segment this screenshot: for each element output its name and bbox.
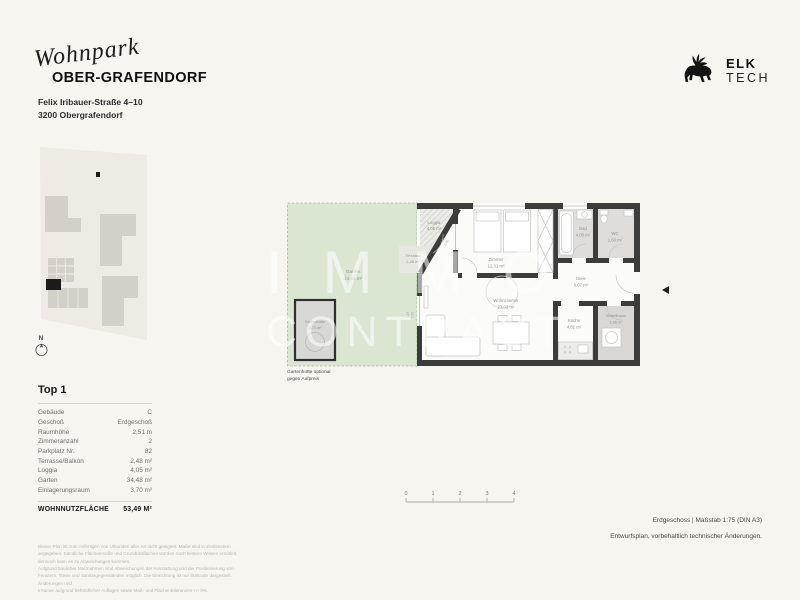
row-value: 82: [145, 448, 152, 455]
row-label: Zimmeranzahl: [38, 438, 79, 445]
row-value: 2,48 m²: [130, 458, 152, 465]
room-label-wohnzimmer: Wohnzimmer: [493, 298, 519, 303]
unit-table-title: Top 1: [38, 384, 152, 396]
row-label: Geschoß: [38, 419, 64, 426]
north-compass: N: [32, 335, 50, 362]
row-label: Raumhöhe: [38, 429, 69, 436]
compass-icon: [34, 342, 49, 357]
table-row: Einlagerungsraum 3,70 m²: [38, 486, 152, 496]
room-label-zimmer: Zimmer: [489, 257, 504, 262]
dim-annotation: 1,13: [406, 312, 410, 318]
project-name: OBER-GRAFENDORF: [52, 70, 207, 86]
row-value: 2,51 m: [132, 429, 152, 436]
north-label: N: [32, 335, 50, 342]
room-label-garten: Garten: [346, 269, 360, 274]
toilet: [600, 210, 608, 215]
table-row: Gebäude C: [38, 408, 152, 418]
room-label-wc: WC: [611, 231, 618, 236]
table-row: Geschoß Erdgeschoß: [38, 418, 152, 428]
room-area-abstellraum: 1,66 m²: [609, 320, 623, 325]
site-plan: [34, 138, 169, 363]
table-row: Loggia 4,05 m²: [38, 466, 152, 476]
row-label: Parkplatz Nr.: [38, 448, 75, 455]
table-row: Garten 34,48 m²: [38, 476, 152, 486]
scale-bar: 0 1 2 3 4: [404, 489, 516, 505]
wc-sink: [624, 210, 633, 216]
dim-annotation: 2,30: [411, 312, 415, 318]
elk-icon: [681, 52, 721, 90]
brand-name-elk: ELK: [726, 57, 770, 71]
site-boundary: [40, 147, 147, 340]
entrance-arrow-icon: [662, 286, 669, 294]
address-line2: 3200 Obergrafendorf: [38, 110, 123, 120]
washing-machine: [602, 328, 621, 347]
scale-tick-label: 2: [458, 491, 461, 497]
footer-revision-note: Entwurfsplan, vorbehaltlich technischer …: [460, 533, 762, 540]
row-value: 3,70 m²: [130, 487, 152, 494]
kitchen-sink: [578, 345, 588, 353]
row-label: Garten: [38, 477, 58, 484]
scale-tick-label: 3: [485, 491, 488, 497]
room-label-loggia: Loggia: [428, 220, 442, 225]
room-label-abstellraum: Abstellraum: [606, 313, 627, 318]
row-value: 34,48 m²: [127, 477, 152, 484]
row-label: Einlagerungsraum: [38, 487, 90, 494]
shed-note-line2: gegen Aufpreis: [287, 376, 357, 383]
total-label: WOHNNUTZFLÄCHE: [38, 506, 109, 513]
table-total-row: WOHNNUTZFLÄCHE 53,49 M²: [38, 506, 152, 513]
room-area-diele: 6,07 m²: [574, 283, 589, 288]
wardrobe: [538, 210, 553, 273]
row-value: 4,05 m²: [130, 467, 152, 474]
row-value: C: [147, 409, 152, 416]
garden-shed: [295, 300, 335, 360]
room-area-bad: 4,00 m²: [576, 233, 591, 238]
room-label-terrasse: Terrasse: [405, 253, 421, 258]
disclaimer-line: Dieser Plan ist zum Anfertigen von Urkun…: [38, 543, 244, 565]
highlighted-building: [46, 279, 61, 290]
table-row: Terrasse/Balkon 2,48 m²: [38, 456, 152, 466]
room-label-kueche: Küche: [568, 318, 581, 323]
unit-table: Top 1 Gebäude C Geschoß Erdgeschoß Raumh…: [38, 384, 152, 513]
room-label-bad: Bad: [579, 226, 587, 231]
room-area-gartenhuette: 3,70 m²: [308, 325, 322, 330]
brand-logo: ELK TECH: [681, 52, 770, 90]
total-value: 53,49 M²: [123, 506, 152, 513]
room-area-zimmer: 12,31 m²: [488, 264, 506, 269]
divider: [38, 501, 152, 502]
tv-board: [424, 286, 428, 308]
legal-disclaimer: Dieser Plan ist zum Anfertigen von Urkun…: [38, 543, 244, 594]
disclaimer-line: Aufgrund baulicher Maßnahmen sind Abweic…: [38, 565, 244, 587]
footer-plan-info: Erdgeschoss | Maßstab 1:75 (DIN A3): [500, 517, 762, 524]
brand-name-tech: TECH: [726, 71, 770, 85]
shed-note-line1: Gartenhütte optional: [287, 369, 357, 376]
table-row: Raumhöhe 2,51 m: [38, 427, 152, 437]
floor-plan: Loggia 4,05 m² Terrasse 2,48 m² Garten 3…: [287, 196, 643, 368]
room-area-wc: 1,60 m²: [608, 238, 623, 243]
dining-table: [493, 322, 529, 344]
room-area-wohnzimmer: 23,03 m²: [498, 305, 516, 310]
row-label: Loggia: [38, 467, 57, 474]
scale-tick-label: 1: [431, 491, 434, 497]
room-label-gartenhuette: Gartenhütte: [305, 319, 326, 324]
room-area-garten: 34,48 m²: [344, 276, 363, 281]
room-area-terrasse: 2,48 m²: [406, 259, 420, 264]
shed-note: Gartenhütte optional gegen Aufpreis: [287, 369, 357, 383]
room-label-diele: Diele: [576, 276, 586, 281]
room-area-kueche: 4,82 m²: [567, 325, 582, 330]
row-value: 2: [148, 438, 152, 445]
room-area-loggia: 4,05 m²: [427, 226, 442, 231]
disclaimer-line: Irrtümer aufgrund behördlicher Auflagen …: [38, 587, 244, 594]
row-label: Gebäude: [38, 409, 64, 416]
project-script-logo: Wohnpark: [33, 34, 141, 74]
table-row: Parkplatz Nr. 82: [38, 447, 152, 457]
address-line1: Felix Iribauer-Straße 4–10: [38, 97, 143, 107]
scale-tick-label: 0: [404, 491, 407, 497]
site-marker: [96, 172, 100, 177]
table-row: Zimmeranzahl 2: [38, 437, 152, 447]
divider: [38, 403, 152, 404]
scale-tick-label: 4: [512, 491, 515, 497]
row-value: Erdgeschoß: [118, 419, 152, 426]
row-label: Terrasse/Balkon: [38, 458, 84, 465]
